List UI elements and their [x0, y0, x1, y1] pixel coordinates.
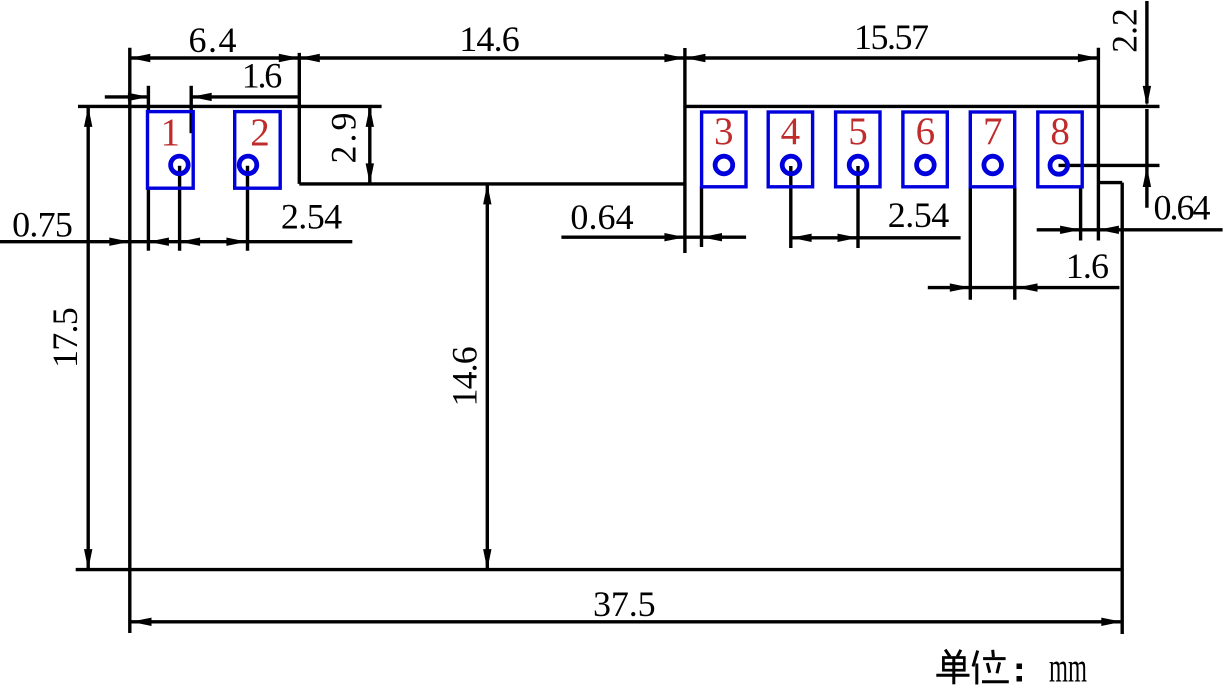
svg-text:mm: mm: [1049, 646, 1087, 692]
svg-text:1.6: 1.6: [242, 56, 283, 96]
svg-text:6: 6: [916, 110, 936, 153]
svg-text:0.75: 0.75: [12, 204, 73, 244]
svg-text:14.6: 14.6: [459, 19, 520, 59]
svg-text:15.57: 15.57: [854, 17, 929, 57]
svg-text:1.6: 1.6: [1066, 246, 1109, 286]
svg-text:0.64: 0.64: [1153, 188, 1210, 228]
svg-text:4: 4: [781, 110, 801, 153]
svg-text:7: 7: [983, 110, 1003, 153]
svg-text:17.5: 17.5: [45, 307, 85, 368]
svg-text:5: 5: [848, 110, 868, 153]
svg-text:2: 2: [250, 111, 270, 154]
svg-text:6.4: 6.4: [189, 20, 237, 60]
svg-text:0.64: 0.64: [570, 197, 633, 237]
svg-text:2.9: 2.9: [323, 113, 363, 164]
svg-text:2.54: 2.54: [281, 197, 342, 237]
svg-text:3: 3: [714, 110, 734, 153]
svg-text:2.2: 2.2: [1105, 8, 1145, 53]
svg-text:14.6: 14.6: [445, 346, 485, 406]
svg-text:37.5: 37.5: [593, 584, 656, 624]
svg-text:1: 1: [161, 111, 181, 154]
svg-text:2.54: 2.54: [888, 195, 950, 235]
svg-text:8: 8: [1050, 110, 1070, 153]
